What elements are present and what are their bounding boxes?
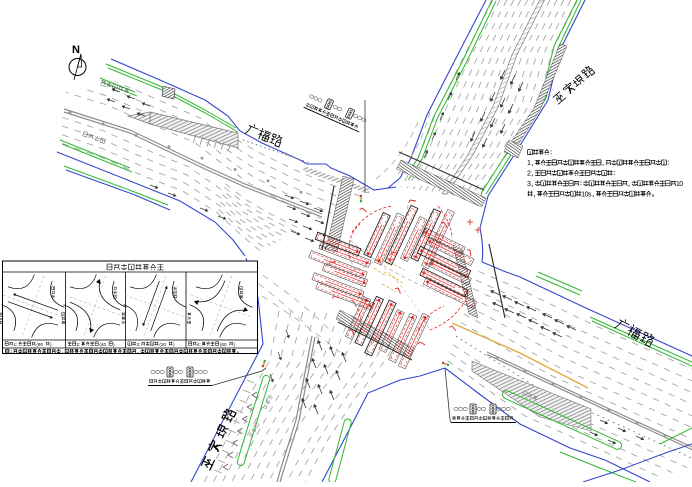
svg-text:(30: (30 bbox=[159, 342, 166, 347]
svg-text:(60: (60 bbox=[220, 342, 227, 347]
svg-text:3:: 3: bbox=[136, 342, 140, 347]
svg-text:(90: (90 bbox=[36, 342, 43, 347]
svg-text:4:: 4: bbox=[197, 342, 201, 347]
svg-text:s: s bbox=[588, 190, 592, 198]
svg-text:N: N bbox=[72, 44, 80, 56]
svg-text:(40: (40 bbox=[99, 342, 106, 347]
svg-text:3: 3 bbox=[527, 180, 531, 188]
svg-text:0: 0 bbox=[679, 180, 683, 188]
svg-text:1: 1 bbox=[527, 159, 531, 167]
svg-text:1:: 1: bbox=[13, 342, 17, 347]
svg-text:2:: 2: bbox=[76, 342, 80, 347]
svg-text:2: 2 bbox=[527, 170, 531, 178]
